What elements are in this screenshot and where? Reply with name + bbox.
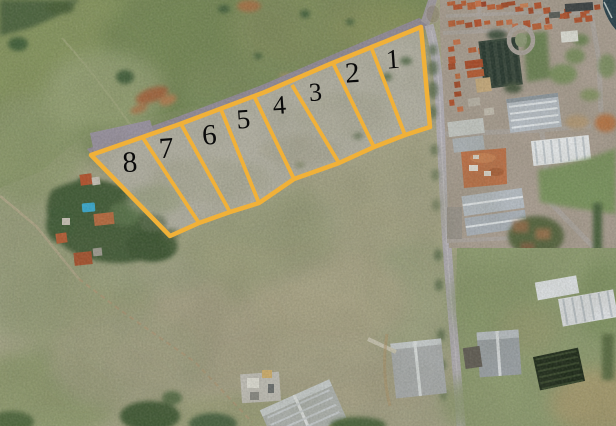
svg-text:6: 6 [201, 119, 218, 152]
svg-text:2: 2 [344, 57, 361, 90]
svg-text:7: 7 [158, 132, 175, 165]
svg-text:1: 1 [385, 43, 401, 75]
svg-text:8: 8 [121, 146, 138, 179]
svg-text:5: 5 [235, 103, 251, 135]
svg-text:4: 4 [272, 89, 287, 120]
svg-text:3: 3 [308, 77, 323, 107]
